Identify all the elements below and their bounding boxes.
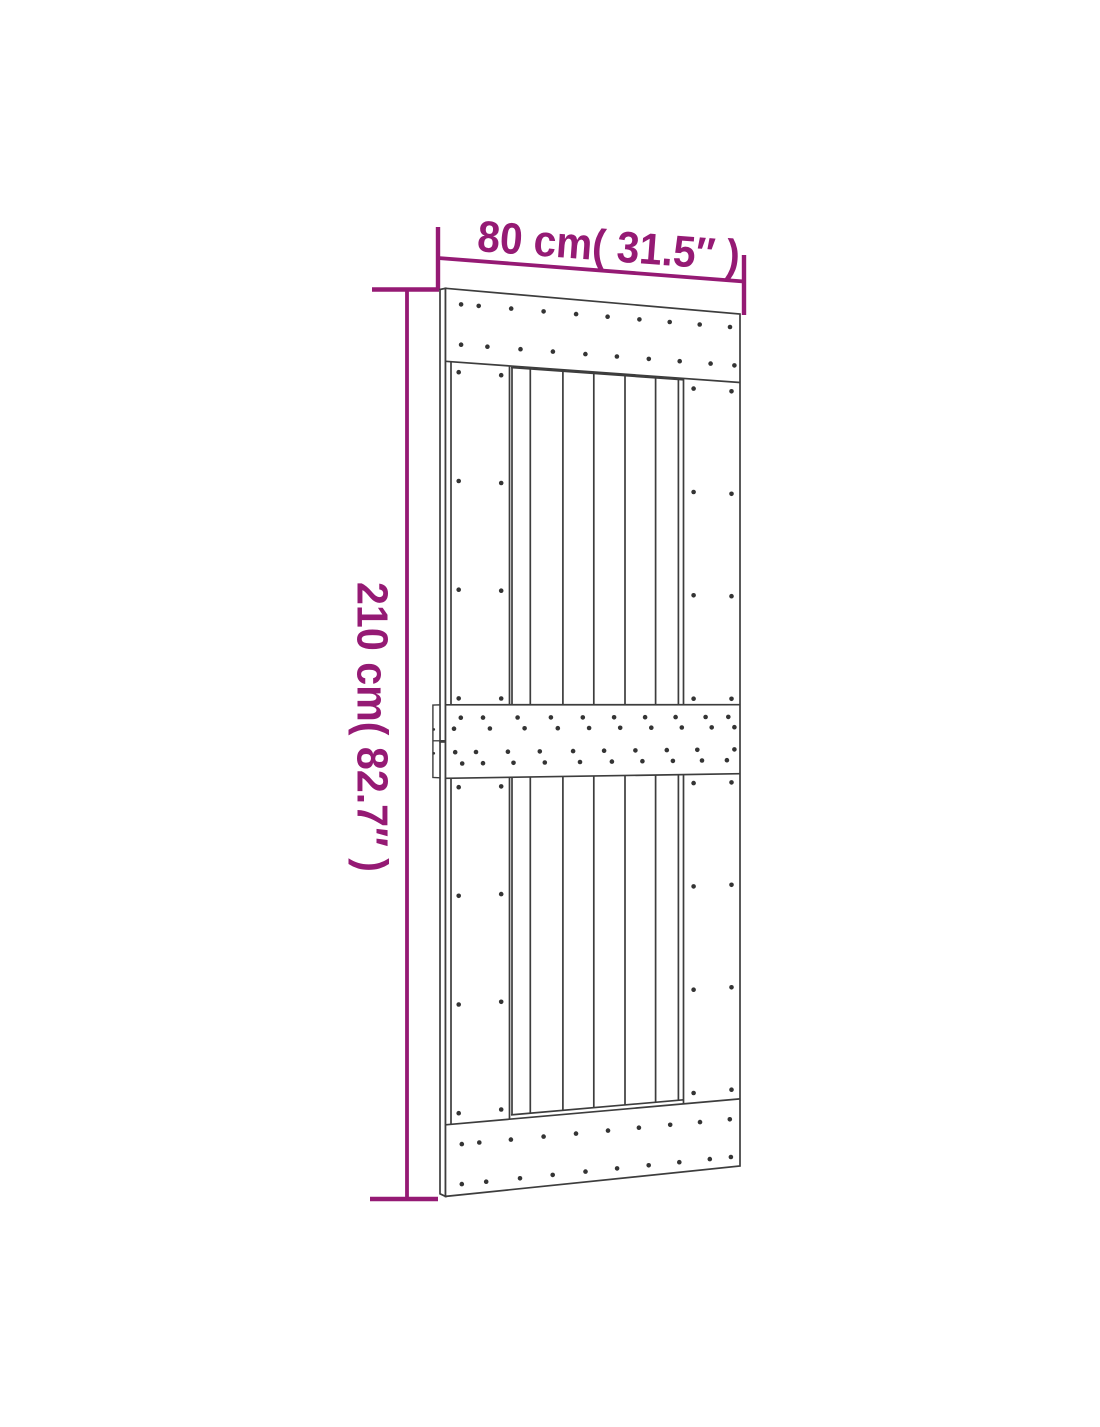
svg-text:210 cm( 82.7″ ): 210 cm( 82.7″ ): [348, 582, 397, 872]
